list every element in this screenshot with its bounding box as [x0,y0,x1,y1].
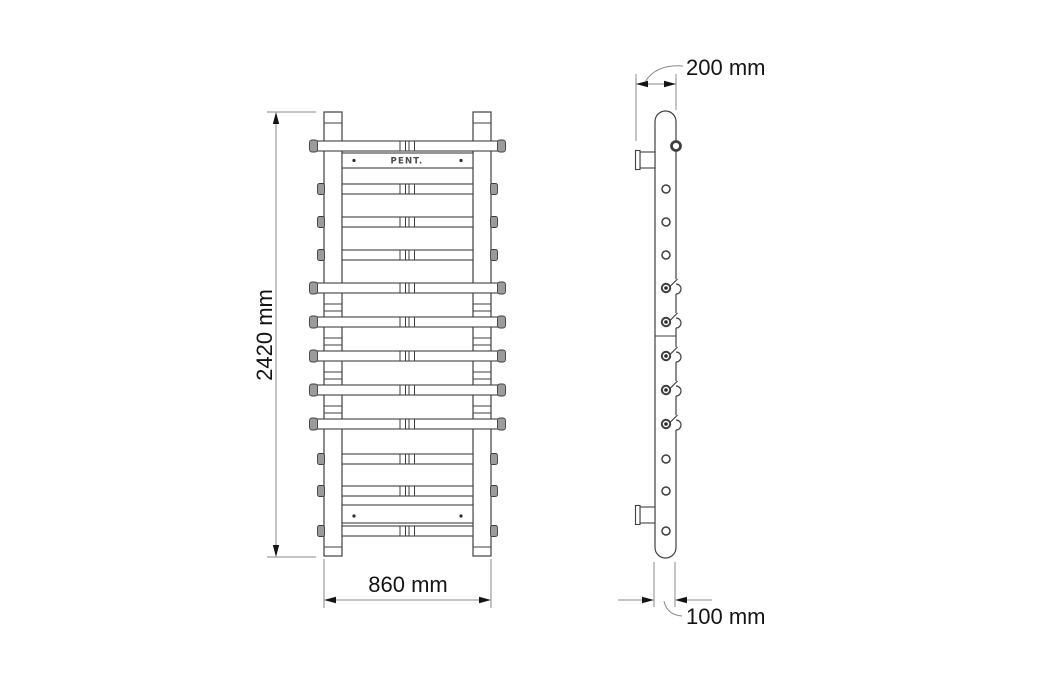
dimension-width: 860 mm [324,559,491,608]
dim-height-label: 2420 mm [252,289,277,381]
right-stile [473,112,491,556]
rung-protruding [310,418,506,430]
rung-protruding [310,384,506,396]
arrowhead-right [479,597,491,603]
bottom-panel [342,505,473,523]
arrowhead-left [324,597,336,603]
rung-protruding [310,316,506,328]
arrowhead-left [675,597,687,603]
rung-ends-bowed [662,284,670,428]
arrowhead-right [642,597,654,603]
rung-flush [318,454,498,465]
side-view [636,111,682,558]
rung-flush [318,217,498,228]
dim-depth-bottom-label: 100 mm [686,604,765,629]
rung-flush [318,526,498,537]
technical-drawing-canvas: PENT. [0,0,1050,700]
wall-bracket-bottom [636,506,656,525]
leader-line [664,601,682,616]
panel-screw [352,159,355,162]
dim-width-label: 860 mm [368,572,447,597]
rung-protruding [310,282,506,294]
top-rung-end [672,142,681,151]
arrowhead-down [273,545,279,557]
panel-screw [459,159,462,162]
rung-flush [318,184,498,195]
panel-screw [352,514,355,517]
dimension-height: 2420 mm [252,112,316,557]
arrowhead-right [664,81,676,87]
rung-flush [318,250,498,261]
rung-protruding [310,350,506,362]
brand-logo-text: PENT. [391,157,424,167]
rung-flush [318,486,498,497]
rung-top [310,140,506,152]
panel-screw [459,514,462,517]
rung-bump [670,279,682,430]
wall-bracket-top [636,151,656,170]
arrowhead-left [636,81,648,87]
left-stile [324,112,342,556]
wall-bars-dimension-drawing: PENT. [0,0,1050,700]
arrowhead-up [273,112,279,124]
dimension-depth-bottom: 100 mm [618,562,765,629]
front-view: PENT. [310,112,506,556]
dim-depth-top-label: 200 mm [686,55,765,80]
brand-panel: PENT. [342,153,473,168]
leader-line [645,66,683,82]
